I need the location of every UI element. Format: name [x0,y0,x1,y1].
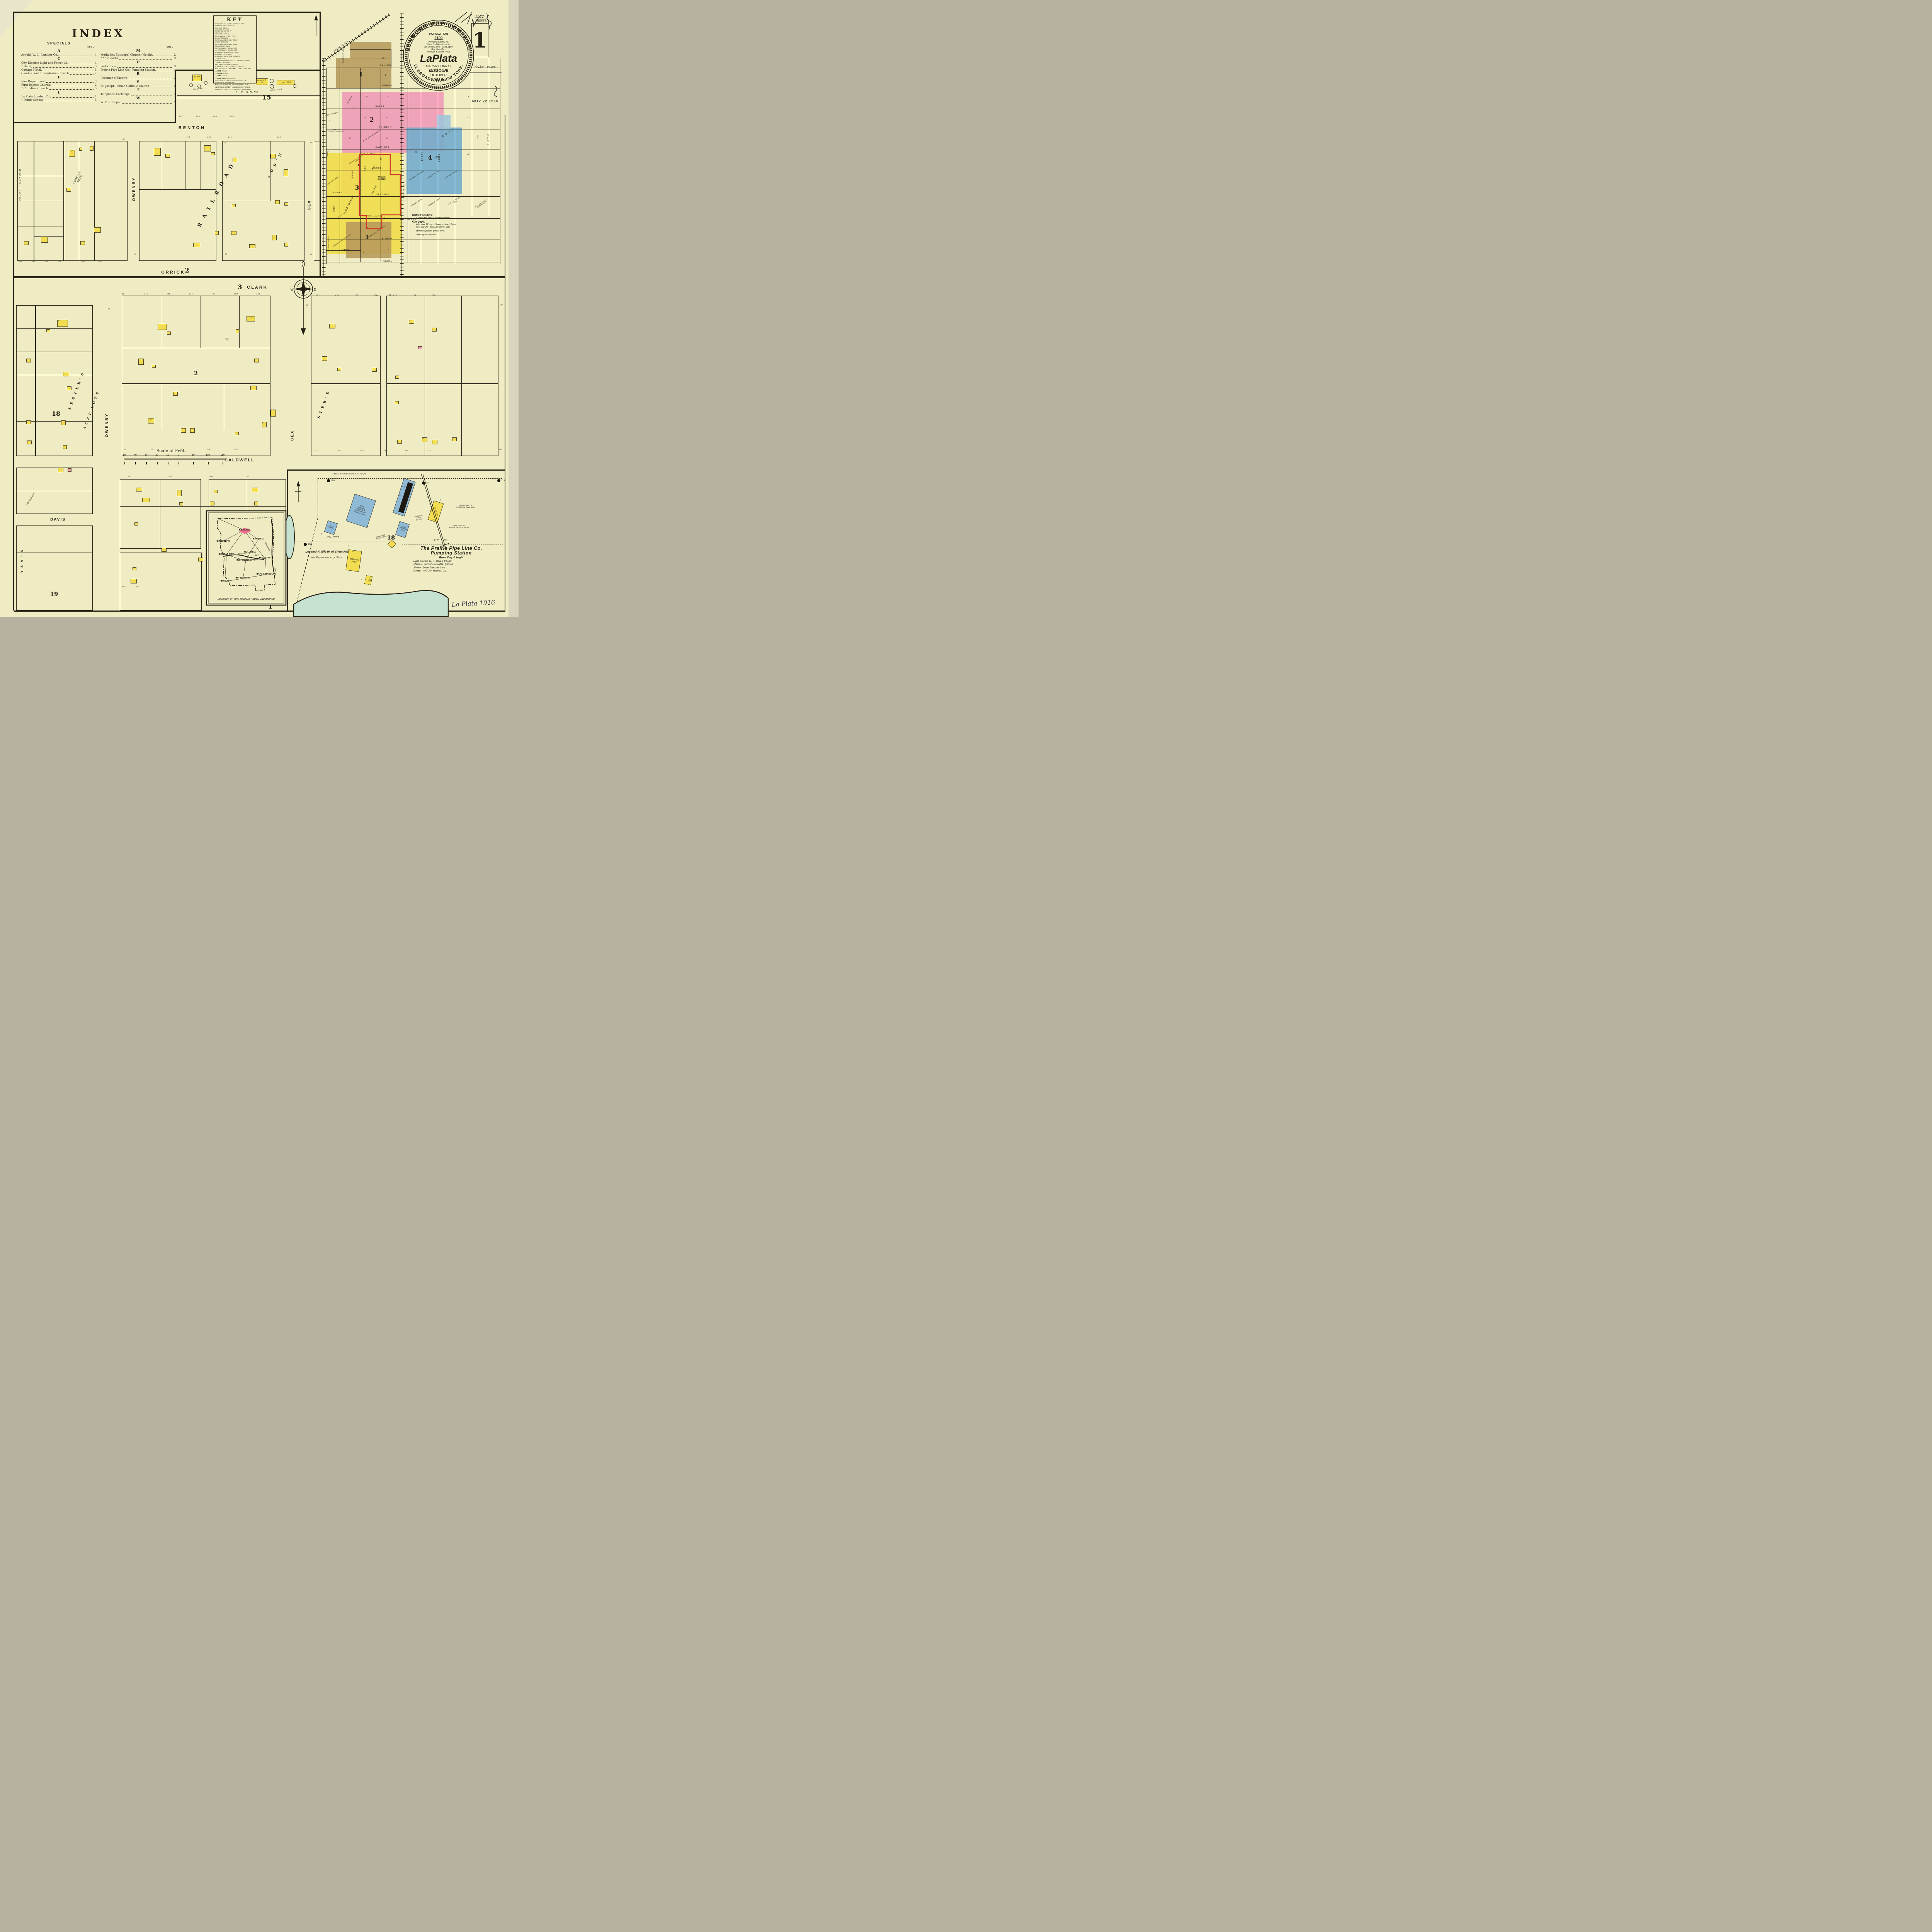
city-label: JEFFERSON CITY [236,559,255,561]
pond-south [294,590,448,617]
city-label: HANNIBAL [253,538,264,540]
sanborn-map-sheet: D.H.D.H.D.H.D.H.D.H.BENTONORRICK23CLARKC… [0,0,519,617]
city-label: ST. LOUIS [260,557,271,559]
compass-rose: W E [291,261,316,335]
city-label: KANSAS CITY [219,553,234,556]
svg-text:W: W [291,288,294,291]
city-label: CAPE GIRARDEAU [257,573,276,575]
handwriting-scribbles [455,12,502,97]
svg-text:E: E [314,288,316,291]
inset-caption: LOCATION OF THIS TOWN AS ABOVE UNDERLINE… [218,598,275,600]
city-label: JOPLIN [221,580,229,582]
inset-map: ST. JOSEPHLA PLATAHANNIBALKANSAS CITYCOL… [206,510,287,607]
fire-limits-line [359,155,400,229]
river-label: River [255,554,260,557]
city-label: LA PLATA [240,529,250,531]
city-label: ST. JOSEPH [217,540,230,543]
city-label: SPRINGFIELD [236,577,250,579]
